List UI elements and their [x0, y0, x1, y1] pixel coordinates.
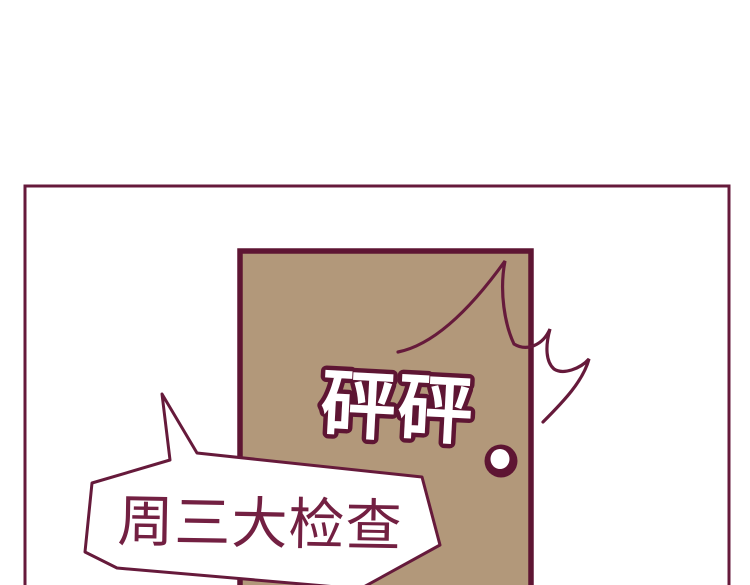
speech-bubble-text: 周三大检查	[117, 490, 403, 560]
comic-panel-illustration: 砰砰 周三大检查	[0, 0, 750, 585]
doorknob-highlight	[491, 449, 510, 469]
comic-page: 砰砰 周三大检查	[0, 0, 750, 585]
knock-sfx-text: 砰砰	[319, 360, 477, 456]
